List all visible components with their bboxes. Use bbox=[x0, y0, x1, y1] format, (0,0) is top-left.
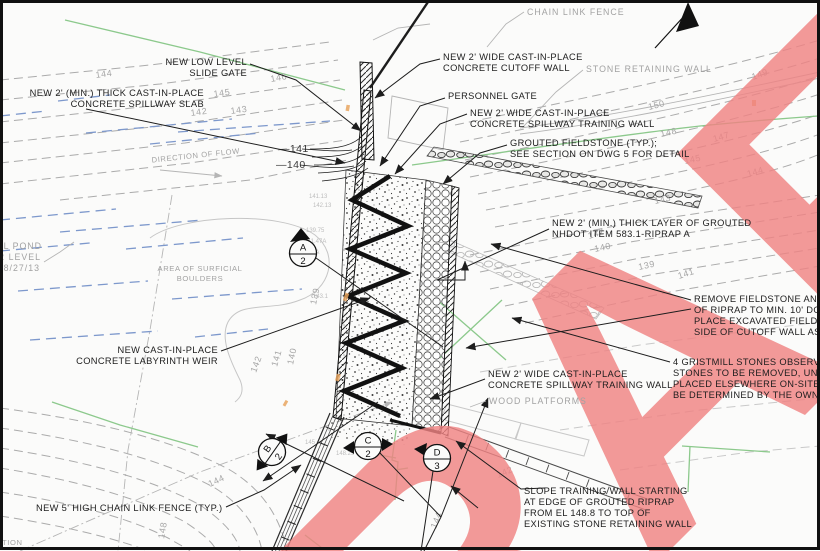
contour-elevation-label: 142 bbox=[248, 354, 263, 373]
svg-text:2: 2 bbox=[300, 256, 305, 267]
site-plan-drawing: 1441461451421431491501481471451441431421… bbox=[0, 0, 820, 551]
label-riprap: NHDOT ITEM 583.1-RIPRAP A bbox=[552, 229, 691, 239]
label-training-wall-bottom: NEW 2' WIDE CAST-IN-PLACE bbox=[488, 369, 628, 379]
label-riprap: NEW 2' (MIN.) THICK LAYER OF GROUTED bbox=[552, 218, 751, 228]
svg-text:2: 2 bbox=[365, 449, 370, 460]
label-area-boulders: AREA OF SURFICIAL bbox=[158, 264, 243, 273]
leader-chain-link-fence bbox=[487, 12, 524, 47]
label-pond-level: 8/27/13 bbox=[4, 263, 40, 273]
label-slide-gate: NEW LOW LEVEL bbox=[165, 57, 247, 67]
label-slope-wall: EXISTING STONE RETAINING WALL bbox=[524, 519, 692, 529]
leader-training-wall-top bbox=[395, 114, 467, 174]
survey-point-label: 141.13 bbox=[309, 194, 328, 200]
contour-elevation-label: 140 bbox=[285, 347, 298, 366]
label-slope-wall: AT EDGE OF GROUTED RIPRAP bbox=[524, 497, 674, 507]
label-cutoff-wall: CONCRETE CUTOFF WALL bbox=[443, 63, 570, 73]
label-stone-retaining-wall: STONE RETAINING WALL bbox=[586, 64, 712, 74]
label-pond-level: EL POND bbox=[0, 241, 42, 251]
label-area-boulders: BOULDERS bbox=[177, 274, 224, 283]
label-grouted-fieldstone: SEE SECTION ON DWG 5 FOR DETAIL bbox=[510, 149, 690, 159]
label-slope-wall: SLOPE TRAINING WALL STARTING bbox=[524, 486, 688, 496]
label-training-wall-bottom: CONCRETE SPILLWAY TRAINING WALL bbox=[488, 380, 673, 390]
label-gristmill: 4 GRISTMILL STONES OBSERVED bbox=[673, 357, 820, 367]
label-cutoff-wall: NEW 2' WIDE CAST-IN-PLACE bbox=[443, 52, 583, 62]
survey-point-label: 142.13 bbox=[313, 203, 332, 209]
leader-pond-level bbox=[44, 242, 74, 262]
svg-text:D: D bbox=[434, 448, 441, 459]
contour-elevation-label: 144 bbox=[95, 68, 113, 80]
survey-point-label: 139.75 bbox=[306, 228, 325, 234]
leader-slide-gate bbox=[250, 64, 361, 131]
label-labyrinth-weir: CONCRETE LABYRINTH WEIR bbox=[76, 356, 218, 366]
label-remove-fieldstone: PLACE EXCAVATED FIELDSTO bbox=[694, 316, 820, 326]
svg-text:A: A bbox=[300, 243, 307, 254]
label-labyrinth-weir: NEW CAST-IN-PLACE bbox=[118, 345, 218, 355]
label-gristmill: BE DETERMINED BY THE OWNER bbox=[673, 390, 820, 400]
label-grouted-fieldstone: GROUTED FIELDSTONE (TYP.); bbox=[510, 138, 657, 148]
water-edge-lines bbox=[0, 95, 330, 340]
survey-point-label: 143.1 bbox=[313, 294, 329, 300]
label-remove-fieldstone: REMOVE FIELDSTONE AND E bbox=[694, 294, 820, 304]
label-remove-fieldstone: SIDE OF CUTOFF WALL AS bbox=[694, 327, 820, 337]
label-gristmill: PLACED ELSEWHERE ON-SITE A bbox=[673, 379, 820, 389]
label-spillway-slab: CONCRETE SPILLWAY SLAB bbox=[71, 99, 204, 109]
svg-text:C: C bbox=[365, 436, 372, 447]
label-personnel-gate: PERSONNEL GATE bbox=[448, 91, 537, 101]
label-spillway-slab: NEW 2' (MIN.) THICK CAST-IN-PLACE bbox=[30, 88, 204, 98]
label-wood-platforms: WOOD PLATFORMS bbox=[489, 396, 587, 406]
label-chain-link-fence: CHAIN LINK FENCE bbox=[527, 7, 625, 17]
contour-elevation-label: 141 bbox=[269, 349, 283, 368]
cutoff-wall bbox=[360, 62, 374, 160]
label-remove-fieldstone: OF RIPRAP TO MIN. 10' DO bbox=[694, 305, 820, 315]
flow-arrow bbox=[160, 170, 222, 176]
label-pond-level: ER LEVEL bbox=[0, 252, 41, 262]
contour-elevation-label: 145 bbox=[213, 87, 231, 99]
label-gristmill: STONES TO BE REMOVED, UNDA bbox=[673, 368, 820, 378]
svg-text:3: 3 bbox=[434, 461, 439, 472]
label-corner-fragment: TION bbox=[2, 538, 23, 547]
contour-elevation-label: 146 bbox=[270, 71, 288, 84]
label-training-wall-top: CONCRETE SPILLWAY TRAINING WALL bbox=[470, 119, 655, 129]
label-slide-gate: SLIDE GATE bbox=[189, 68, 247, 78]
label-fence-new: NEW 5' HIGH CHAIN LINK FENCE (TYP.) bbox=[36, 503, 222, 513]
contour-elevation-label: 148 bbox=[156, 521, 169, 539]
label-training-wall-top: NEW 2' WIDE CAST-IN-PLACE bbox=[470, 108, 610, 118]
label-slope-wall: FROM EL 148.8 TO TOP OF bbox=[524, 508, 651, 518]
